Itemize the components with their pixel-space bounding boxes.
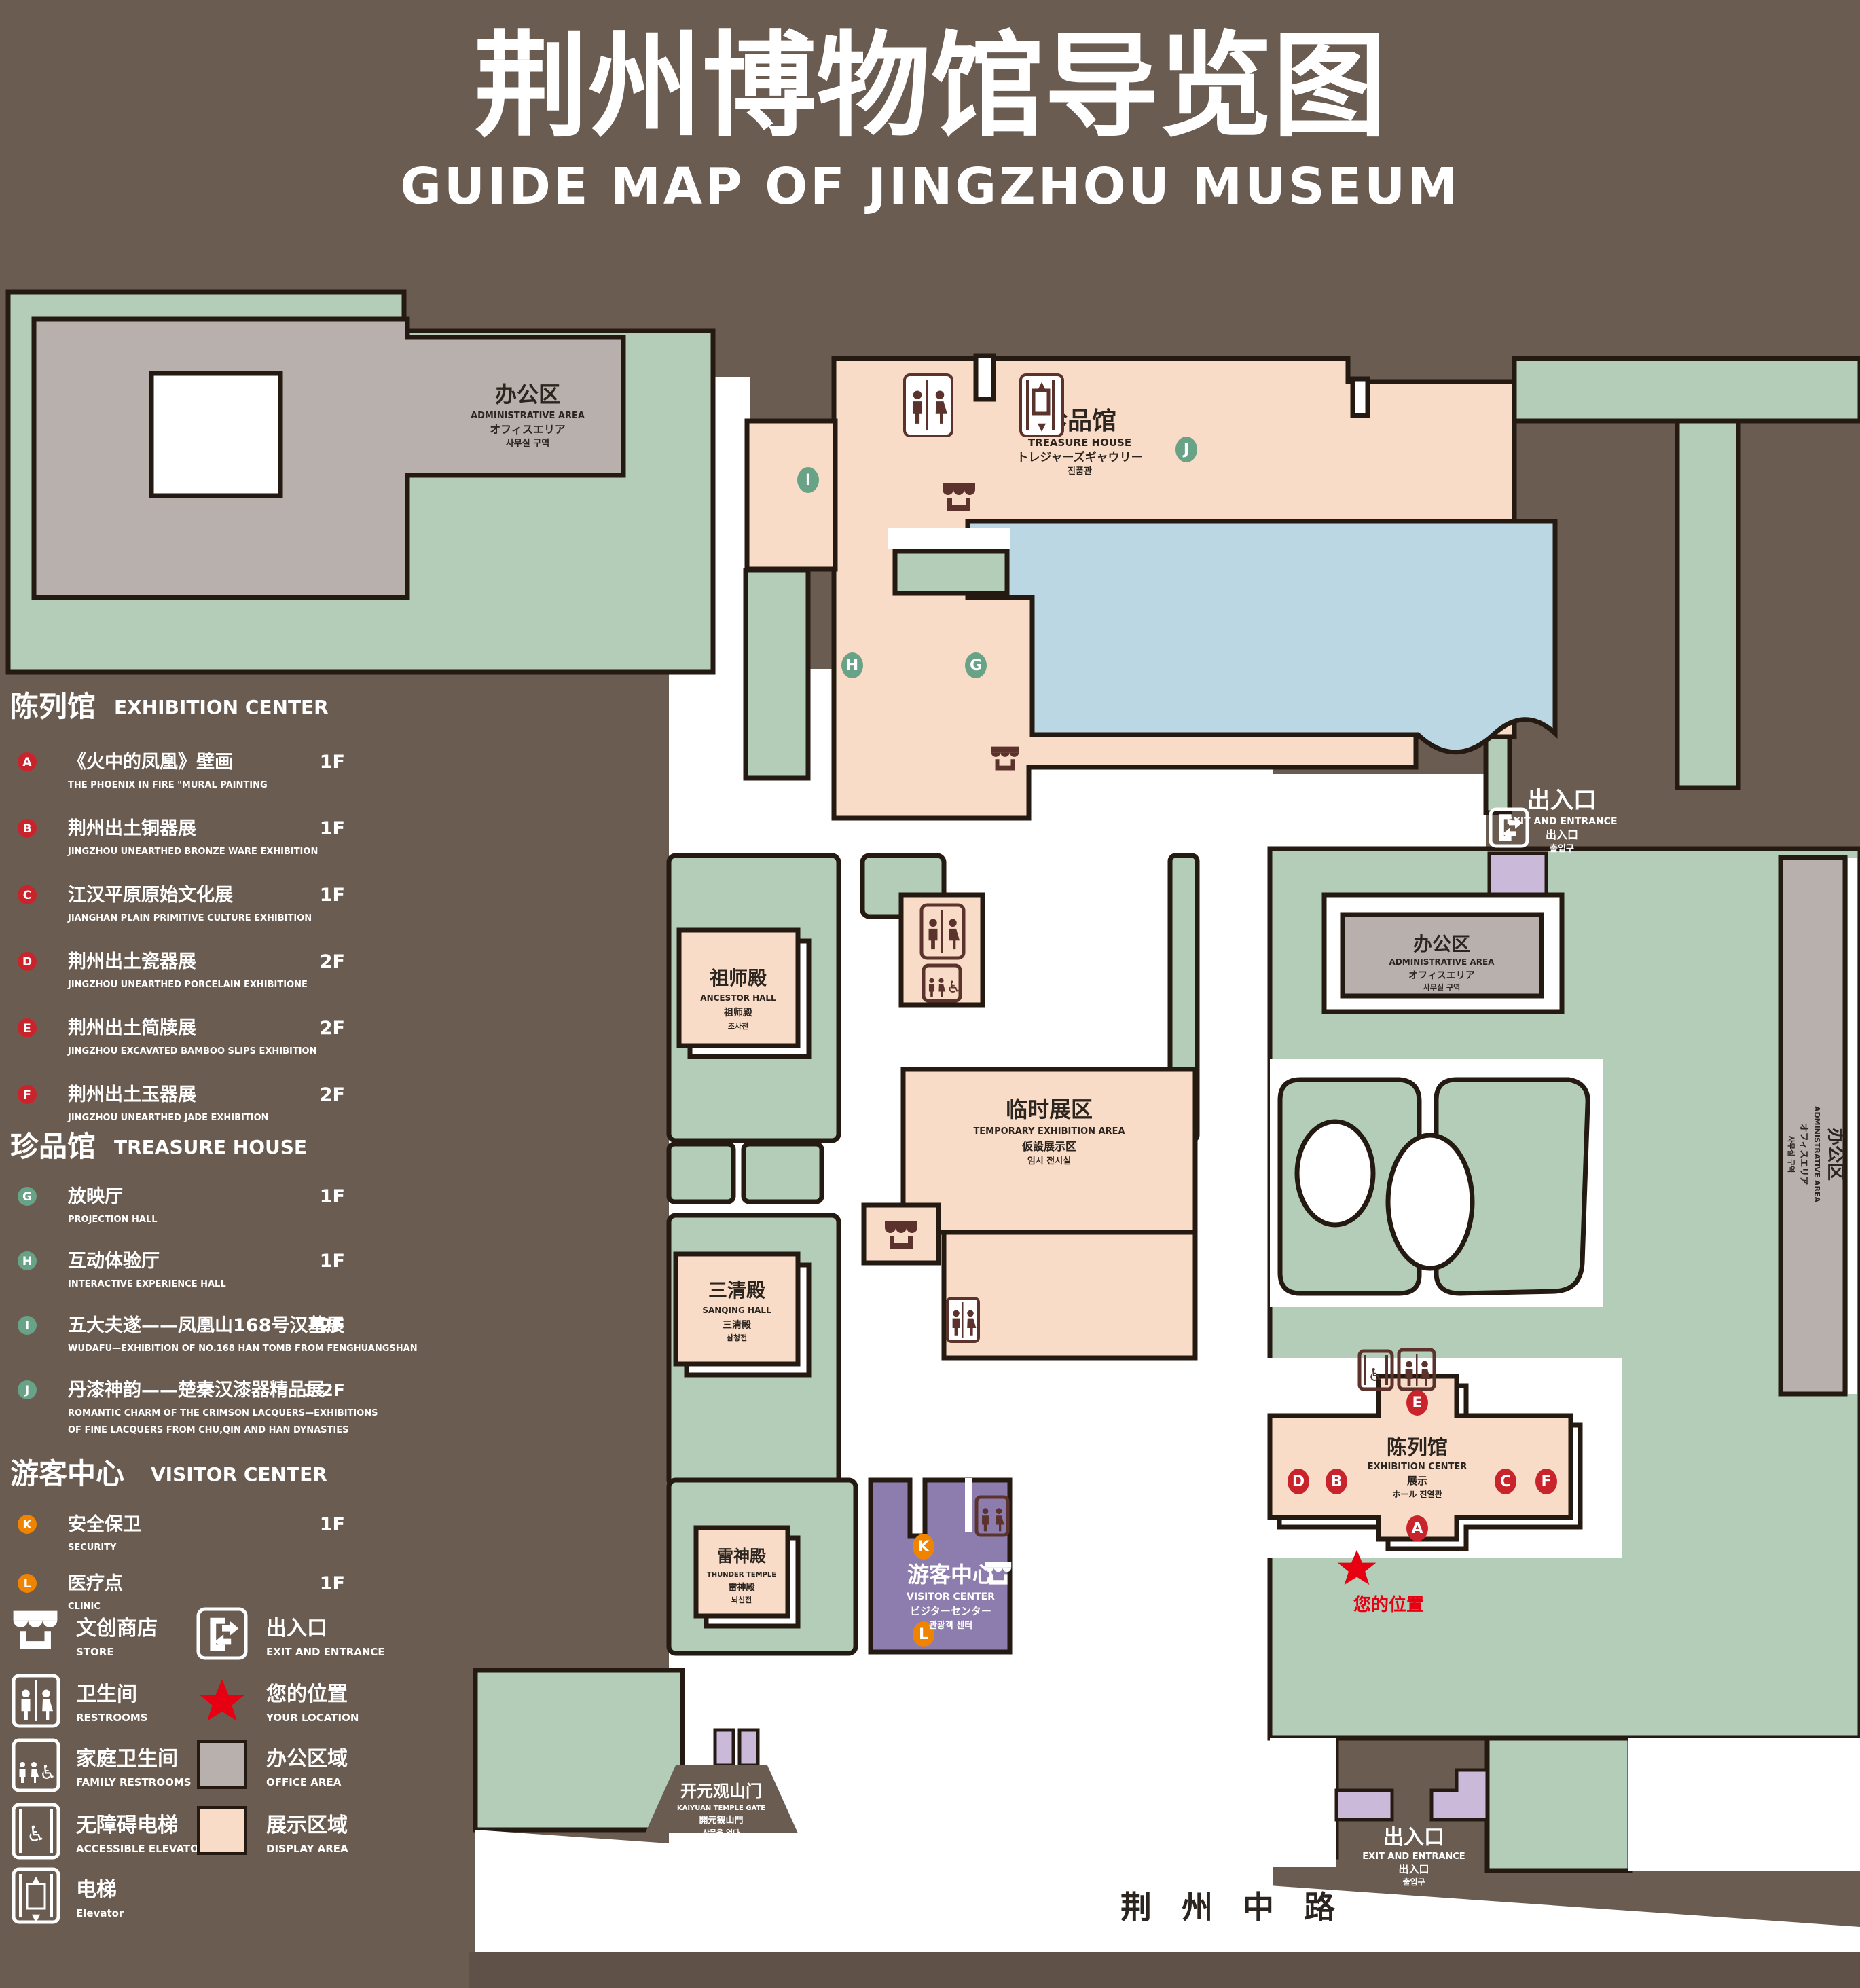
legend-section-title: 游客中心 — [10, 1457, 124, 1490]
svg-text:EXIT AND ENTRANCE: EXIT AND ENTRANCE — [1362, 1852, 1465, 1862]
svg-text:三清殿: 三清殿 — [723, 1319, 752, 1331]
svg-text:SANQING HALL: SANQING HALL — [702, 1306, 771, 1315]
svg-text:EXIT AND ENTRANCE: EXIT AND ENTRANCE — [266, 1646, 385, 1658]
svg-text:G: G — [22, 1190, 32, 1204]
svg-text:FAMILY RESTROOMS: FAMILY RESTROOMS — [76, 1776, 192, 1788]
svg-text:I: I — [25, 1319, 29, 1333]
svg-text:陈列馆: 陈列馆 — [1387, 1436, 1448, 1460]
ancestor-hall: 祖师殿 ANCESTOR HALL 祖师殿 조사전 — [679, 930, 809, 1056]
lake — [968, 521, 1555, 752]
svg-text:ホール 진열관: ホール 진열관 — [1392, 1489, 1442, 1499]
svg-text:医疗点: 医疗点 — [68, 1572, 123, 1594]
svg-text:C: C — [1500, 1473, 1511, 1490]
page-subtitle: GUIDE MAP OF JINGZHOU MUSEUM — [400, 158, 1461, 216]
svg-text:1F: 1F — [320, 885, 345, 906]
svg-text:▲: ▲ — [1038, 379, 1046, 392]
svg-text:三清殿: 三清殿 — [708, 1279, 765, 1302]
svg-text:F: F — [23, 1088, 31, 1102]
svg-text:雷神殿: 雷神殿 — [728, 1582, 755, 1593]
svg-text:산문을 열다: 산문을 열다 — [703, 1828, 740, 1837]
green-column-right — [1677, 421, 1738, 788]
svg-text:EXHIBITION CENTER: EXHIBITION CENTER — [1368, 1462, 1467, 1472]
admin-strip-right: 办公区 ADMINISTRATIVE AREA オフィスエリア 사무실 구역 — [1781, 858, 1857, 1394]
svg-text:荆州出土铜器展: 荆州出土铜器展 — [68, 818, 196, 839]
road-south-strip — [469, 1952, 1860, 1988]
svg-text:G: G — [970, 657, 982, 674]
svg-text:▼: ▼ — [1038, 420, 1046, 433]
elevator-icon: ▲ ▼ — [1021, 375, 1063, 436]
entrance-block — [1336, 1790, 1392, 1820]
marker-H: H — [841, 652, 863, 678]
marker-E: E — [1406, 1390, 1428, 1416]
svg-text:祖师殿: 祖师殿 — [710, 967, 767, 989]
visitor-slit — [965, 1478, 972, 1532]
legend-section-title: 陈列馆 — [10, 690, 96, 723]
svg-text:办公区: 办公区 — [495, 382, 560, 407]
svg-text:出入口: 出入口 — [266, 1617, 327, 1640]
svg-text:CLINIC: CLINIC — [68, 1602, 101, 1612]
your-location-label: 您的位置 — [1353, 1594, 1424, 1615]
svg-text:관광객 센터: 관광객 센터 — [929, 1620, 972, 1631]
svg-text:▲: ▲ — [32, 1873, 41, 1886]
svg-text:K: K — [22, 1518, 32, 1532]
svg-text:D: D — [22, 955, 32, 969]
green-bar-west — [746, 570, 808, 778]
svg-text:ROMANTIC CHARM OF THE CRIMSON: ROMANTIC CHARM OF THE CRIMSON LACQUERS—E… — [68, 1408, 378, 1418]
legend-section-subtitle: TREASURE HOUSE — [114, 1136, 307, 1158]
svg-text:出入口: 出入口 — [1527, 787, 1597, 814]
lawn-small-2 — [669, 1144, 733, 1202]
svg-text:文创商店: 文创商店 — [76, 1617, 158, 1640]
garden-pond-west — [1297, 1122, 1373, 1225]
svg-text:荆州出土瓷器展: 荆州出土瓷器展 — [68, 951, 196, 972]
svg-text:♿: ♿ — [947, 978, 962, 997]
legend-section-subtitle: VISITOR CENTER — [151, 1463, 327, 1486]
store-kiosk — [864, 1205, 938, 1263]
svg-text:1F: 1F — [320, 1251, 345, 1272]
svg-text:삼청전: 삼청전 — [727, 1333, 747, 1342]
marker-G: G — [965, 652, 987, 678]
svg-text:オフィスエリア: オフィスエリア — [1798, 1124, 1808, 1185]
entrance-block — [1489, 853, 1546, 896]
green-band-top-right — [1514, 358, 1860, 421]
svg-text:DISPLAY AREA: DISPLAY AREA — [266, 1843, 348, 1855]
svg-text:JIANGHAN PLAIN PRIMITIVE CULTU: JIANGHAN PLAIN PRIMITIVE CULTURE EXHIBIT… — [67, 913, 312, 923]
svg-text:ACCESSIBLE ELEVATOR: ACCESSIBLE ELEVATOR — [76, 1843, 207, 1855]
svg-text:TEMPORARY EXHIBITION AREA: TEMPORARY EXHIBITION AREA — [973, 1126, 1125, 1137]
gate-pillar-east — [740, 1730, 758, 1765]
svg-text:您的位置: 您的位置 — [266, 1682, 348, 1706]
svg-text:出入口: 出入口 — [1383, 1826, 1444, 1849]
svg-text:卫生间: 卫生间 — [76, 1682, 137, 1706]
svg-text:K: K — [917, 1539, 930, 1556]
svg-text:荆州出土玉器展: 荆州出土玉器展 — [68, 1084, 196, 1105]
admin-courtyard — [151, 373, 280, 496]
svg-text:丹漆神韵——楚秦汉漆器精品展: 丹漆神韵——楚秦汉漆器精品展 — [68, 1379, 325, 1401]
svg-text:展示区域: 展示区域 — [266, 1814, 348, 1837]
lake-path — [888, 528, 1010, 549]
marker-A: A — [1406, 1515, 1428, 1541]
office-area-swatch — [198, 1742, 246, 1788]
svg-text:J: J — [1182, 441, 1189, 458]
svg-text:出入口: 出入口 — [1398, 1863, 1429, 1875]
restroom-building: ♿ — [901, 895, 983, 1005]
svg-text:家庭卫生间: 家庭卫生间 — [76, 1747, 178, 1771]
svg-text:ADMINISTRATIVE AREA: ADMINISTRATIVE AREA — [1389, 957, 1495, 967]
svg-text:1F: 1F — [320, 818, 345, 839]
svg-text:E: E — [23, 1022, 31, 1035]
svg-text:办公区域: 办公区域 — [266, 1747, 348, 1771]
svg-text:RESTROOMS: RESTROOMS — [76, 1712, 148, 1724]
garden-pond-center — [1388, 1135, 1472, 1268]
svg-text:オフィスエリア: オフィスエリア — [490, 423, 566, 436]
svg-text:办公区: 办公区 — [1825, 1128, 1845, 1181]
svg-text:B: B — [23, 822, 32, 836]
visitor-center: K L 游客中心 VISITOR CENTER ビジターセンター 관광객 센터 — [871, 1478, 1011, 1652]
treasure-house: 珍品馆 TREASURE HOUSE トレジャーズギャウリー 진품관 ▲ ▼ I… — [746, 356, 1555, 818]
svg-text:2F: 2F — [320, 951, 345, 972]
legend-section-subtitle: EXHIBITION CENTER — [114, 696, 329, 718]
svg-text:放映厅: 放映厅 — [67, 1185, 123, 1207]
green-bottom-left — [475, 1670, 682, 1830]
svg-text:조사전: 조사전 — [728, 1021, 748, 1031]
svg-text:仮設展示区: 仮設展示区 — [1021, 1140, 1076, 1153]
marker-B: B — [1326, 1469, 1347, 1494]
svg-text:JINGZHOU EXCAVATED BAMBOO SLIP: JINGZHOU EXCAVATED BAMBOO SLIPS EXHIBITI… — [67, 1046, 316, 1056]
marker-C: C — [1495, 1469, 1516, 1494]
sanqing-hall: 三清殿 SANQING HALL 三清殿 삼청전 — [676, 1254, 809, 1375]
svg-text:F: F — [1541, 1473, 1551, 1490]
lawn-small-3 — [744, 1144, 822, 1202]
svg-text:1F: 1F — [320, 752, 345, 773]
svg-text:トレジャーズギャウリー: トレジャーズギャウリー — [1017, 450, 1142, 464]
symbol-display-area: 展示区域 DISPLAY AREA — [198, 1807, 348, 1855]
svg-text:EXIT AND ENTRANCE: EXIT AND ENTRANCE — [1506, 816, 1617, 827]
svg-text:사무실 구역: 사무실 구역 — [1423, 982, 1460, 992]
green-sliver-exit — [1486, 737, 1510, 813]
svg-text:OF FINE LACQUERS FROM CHU,QIN: OF FINE LACQUERS FROM CHU,QIN AND HAN DY… — [68, 1425, 348, 1435]
svg-text:THE PHOENIX IN FIRE "MURAL PAI: THE PHOENIX IN FIRE "MURAL PAINTING — [68, 780, 268, 790]
treasure-notch-1 — [976, 356, 993, 399]
svg-text:荆州出土简牍展: 荆州出土简牍展 — [68, 1017, 196, 1039]
svg-text:사무실 구역: 사무실 구역 — [506, 438, 549, 449]
svg-text:♿: ♿ — [1368, 1365, 1383, 1386]
svg-text:祖师殿: 祖师殿 — [723, 1007, 753, 1018]
svg-text:J: J — [24, 1384, 29, 1397]
admin-area-top-left: 办公区 ADMINISTRATIVE AREA オフィスエリア 사무실 구역 — [8, 292, 713, 672]
page-title: 荆州博物馆导览图 — [474, 20, 1387, 153]
svg-text:出入口: 出入口 — [1546, 828, 1578, 841]
svg-text:출입구: 출입구 — [1550, 843, 1574, 854]
svg-text:출입구: 출입구 — [1402, 1877, 1425, 1887]
svg-text:뇌신전: 뇌신전 — [731, 1595, 752, 1604]
svg-text:无障碍电梯: 无障碍电梯 — [76, 1814, 178, 1837]
svg-text:オフィスエリア: オフィスエリア — [1408, 970, 1475, 981]
marker-I: I — [797, 467, 819, 493]
svg-text:1F: 1F — [320, 1573, 345, 1594]
garden — [1270, 1059, 1603, 1307]
svg-text:L: L — [919, 1626, 928, 1643]
road-label: 荆 州 中 路 — [1120, 1889, 1345, 1926]
svg-text:SECURITY: SECURITY — [68, 1543, 117, 1553]
svg-text:PROJECTION HALL: PROJECTION HALL — [68, 1215, 158, 1225]
display-area-swatch — [198, 1807, 246, 1854]
svg-text:OFFICE AREA: OFFICE AREA — [266, 1776, 342, 1788]
svg-text:▼: ▼ — [32, 1911, 41, 1924]
svg-text:KAIYUAN TEMPLE GATE: KAIYUAN TEMPLE GATE — [677, 1805, 765, 1812]
svg-text:2F: 2F — [320, 1018, 345, 1039]
svg-text:JINGZHOU UNEARTHED PORCELAIN E: JINGZHOU UNEARTHED PORCELAIN EXHIBITIONE — [67, 980, 308, 990]
svg-text:JINGZHOU UNEARTHED JADE EXHIBI: JINGZHOU UNEARTHED JADE EXHIBITION — [67, 1113, 269, 1123]
svg-text:开元观山门: 开元观山门 — [680, 1782, 762, 1801]
map-canvas: 荆州博物馆导览图 GUIDE MAP OF JINGZHOU MUSEUM 办公… — [0, 0, 1860, 1988]
svg-text:Elevator: Elevator — [76, 1907, 124, 1919]
legend-section-title: 珍品馆 — [10, 1130, 96, 1163]
svg-text:B: B — [1331, 1473, 1343, 1490]
svg-text:2F: 2F — [320, 1084, 345, 1105]
svg-text:D: D — [1292, 1473, 1305, 1490]
svg-text:ANCESTOR HALL: ANCESTOR HALL — [700, 993, 776, 1003]
svg-text:电梯: 电梯 — [76, 1878, 117, 1902]
svg-text:A: A — [22, 756, 32, 769]
svg-text:互动体验厅: 互动体验厅 — [68, 1250, 160, 1272]
svg-text:E: E — [1412, 1395, 1422, 1412]
svg-text:진품관: 진품관 — [1068, 466, 1092, 477]
svg-text:임시 전시실: 임시 전시실 — [1027, 1156, 1071, 1166]
svg-text:办公区: 办公区 — [1413, 933, 1470, 955]
svg-text:사무실 구역: 사무실 구역 — [1787, 1136, 1796, 1173]
temporary-building-lower — [944, 1232, 1195, 1358]
svg-text:安全保卫: 安全保卫 — [68, 1513, 141, 1535]
svg-text:《火中的凤凰》壁画: 《火中的凤凰》壁画 — [68, 751, 233, 773]
treasure-house-west-wing — [747, 421, 835, 569]
svg-text:江汉平原原始文化展: 江汉平原原始文化展 — [68, 884, 233, 906]
gate-pillar-west — [715, 1730, 733, 1765]
svg-text:開元観山門: 開元観山門 — [699, 1815, 743, 1826]
thunder-temple: 雷神殿 THUNDER TEMPLE 雷神殿 뇌신전 — [696, 1528, 798, 1626]
svg-text:五大夫遂——凤凰山168号汉墓展: 五大夫遂——凤凰山168号汉墓展 — [68, 1314, 344, 1336]
admin-area-right: 办公区 ADMINISTRATIVE AREA オフィスエリア 사무실 구역 — [1324, 895, 1562, 1012]
restroom-icon — [947, 1298, 979, 1342]
svg-text:STORE: STORE — [76, 1646, 114, 1658]
svg-text:2F: 2F — [320, 1315, 345, 1336]
restroom-icon — [905, 375, 952, 436]
svg-text:♿: ♿ — [26, 1821, 46, 1847]
svg-text:A: A — [1411, 1520, 1423, 1537]
svg-text:THUNDER TEMPLE: THUNDER TEMPLE — [707, 1571, 776, 1579]
green-exit-right — [1487, 1738, 1630, 1871]
svg-text:ADMINISTRATIVE AREA: ADMINISTRATIVE AREA — [471, 411, 585, 421]
svg-text:ビジターセンター: ビジターセンター — [910, 1605, 991, 1617]
svg-text:雷神殿: 雷神殿 — [717, 1547, 767, 1566]
marker-D: D — [1288, 1469, 1309, 1494]
svg-text:C: C — [23, 889, 31, 902]
svg-text:INTERACTIVE EXPERIENCE HALL: INTERACTIVE EXPERIENCE HALL — [68, 1279, 226, 1289]
svg-text:WUDAFU—EXHIBITION OF NO.168 HA: WUDAFU—EXHIBITION OF NO.168 HAN TOMB FRO… — [68, 1344, 418, 1354]
marker-F: F — [1535, 1469, 1557, 1494]
svg-text:I: I — [805, 472, 811, 489]
svg-text:临时展区: 临时展区 — [1006, 1097, 1093, 1122]
svg-text:H: H — [846, 657, 858, 674]
svg-text:♿: ♿ — [39, 1761, 56, 1784]
svg-text:1F: 1F — [320, 1514, 345, 1535]
svg-text:TREASURE HOUSE: TREASURE HOUSE — [1028, 437, 1131, 449]
marker-J: J — [1175, 437, 1197, 462]
symbol-office-area: 办公区域 OFFICE AREA — [198, 1742, 348, 1788]
svg-text:L: L — [24, 1577, 31, 1591]
svg-text:YOUR LOCATION: YOUR LOCATION — [266, 1712, 359, 1724]
svg-text:VISITOR CENTER: VISITOR CENTER — [907, 1591, 995, 1602]
marker-K: K — [913, 1534, 934, 1560]
svg-text:H: H — [22, 1255, 32, 1268]
svg-text:展示: 展示 — [1407, 1475, 1427, 1487]
guide-map-poster: 荆州博物馆导览图 GUIDE MAP OF JINGZHOU MUSEUM 办公… — [0, 0, 1860, 1988]
treasure-notch-2 — [1353, 379, 1368, 416]
svg-text:ADMINISTRATIVE AREA: ADMINISTRATIVE AREA — [1812, 1106, 1821, 1202]
svg-text:1F: 1F — [320, 1186, 345, 1207]
svg-text:游客中心: 游客中心 — [907, 1562, 994, 1587]
svg-text:JINGZHOU UNEARTHED BRONZE WARE: JINGZHOU UNEARTHED BRONZE WARE EXHIBITIO… — [67, 847, 318, 857]
lake-green-island — [895, 551, 1007, 593]
svg-text:1-2F: 1-2F — [303, 1380, 345, 1400]
